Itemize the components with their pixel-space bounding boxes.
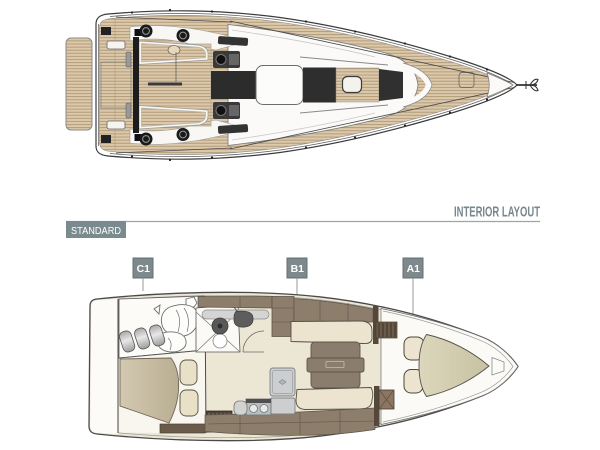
svg-text:A1: A1 <box>407 263 421 275</box>
svg-text:STANDARD: STANDARD <box>71 226 121 237</box>
svg-text:INTERIOR LAYOUT: INTERIOR LAYOUT <box>454 205 540 221</box>
svg-text:B1: B1 <box>291 263 305 275</box>
svg-text:C1: C1 <box>137 263 151 275</box>
